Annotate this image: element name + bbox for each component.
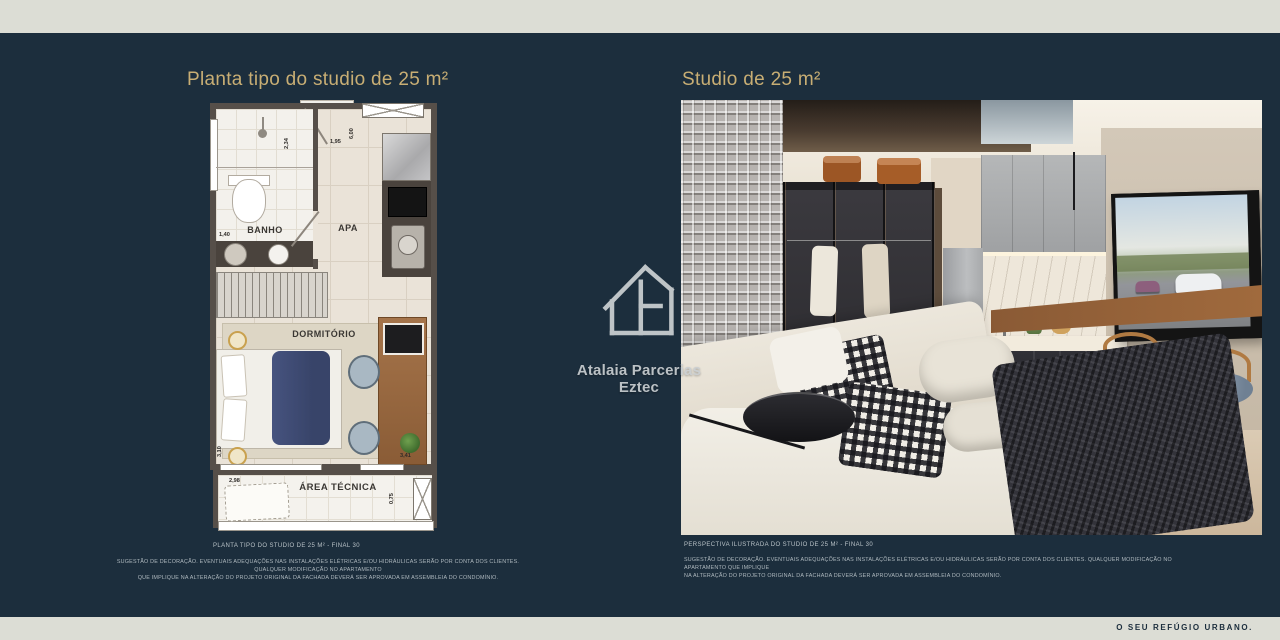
room-label-area-tecnica: ÁREA TÉCNICA [299, 482, 377, 493]
watermark-brand: Atalaia Parcerias Eztec [556, 362, 722, 396]
top-band [0, 0, 1280, 33]
brochure-page: Planta tipo do studio de 25 m² Studio de… [0, 0, 1280, 640]
floor-plan: BANHO 1,40 APA 2,34 1,95 6,00 DORMITÓRIO… [210, 103, 437, 470]
dim-1-95: 1,95 [330, 139, 341, 145]
dim-0-75: 0,75 [389, 480, 395, 504]
cooktop [388, 187, 427, 217]
technical-window [413, 478, 432, 520]
room-label-dormitorio: DORMITÓRIO [268, 329, 380, 339]
technical-area: ÁREA TÉCNICA 2,98 0,75 [213, 470, 437, 534]
bed-pillow [221, 354, 248, 398]
fridge [382, 133, 431, 181]
shower-head-icon [258, 129, 267, 138]
bottom-band: O SEU REFÚGIO URBANO. [0, 617, 1280, 640]
kitchen-sink-bowl [398, 235, 418, 255]
technical-wall-top [213, 470, 437, 475]
technical-window-strip [218, 521, 434, 531]
washing-machine [224, 482, 290, 521]
plan-disclaimer: SUGESTÃO DE DECORAÇÃO. EVENTUAIS ADEQUAÇ… [108, 558, 528, 582]
wardrobe-closet [216, 272, 328, 318]
watermark: Atalaia Parcerias Eztec [556, 250, 722, 392]
photo-title: Studio de 25 m² [682, 69, 821, 91]
leather-box [823, 156, 861, 182]
plan-caption: PLANTA TIPO DO STUDIO DE 25 M² - FINAL 3… [213, 543, 360, 549]
dim-3-10: 3,10 [217, 431, 223, 457]
room-label-banho: BANHO [240, 225, 290, 235]
technical-wall-right [432, 470, 437, 528]
tv-on-desk [383, 323, 424, 355]
tv-purple-car [1135, 281, 1159, 293]
bathroom-window [210, 119, 218, 191]
plan-disclaimer-line1: SUGESTÃO DE DECORAÇÃO. EVENTUAIS ADEQUAÇ… [108, 558, 528, 574]
nightstand-lamp [228, 331, 247, 350]
plan-title: Planta tipo do studio de 25 m² [187, 69, 448, 91]
plan-disclaimer-line2: QUE IMPLIQUE NA ALTERAÇÃO DO PROJETO ORI… [108, 574, 528, 582]
technical-wall-left [213, 470, 218, 528]
dim-1-40: 1,40 [219, 232, 230, 238]
washbasin [224, 243, 247, 266]
desk-chair [348, 421, 380, 455]
desk-chair [348, 355, 380, 389]
photo-caption: PERSPECTIVA ILUSTRADA DO STUDIO DE 25 M²… [684, 542, 873, 548]
hanging-rod [787, 240, 931, 241]
kitchen-window [362, 103, 424, 118]
pendant-light [1073, 152, 1075, 210]
house-logo-icon [593, 252, 685, 342]
hanging-shirt [862, 244, 891, 319]
bed-pillow [221, 398, 248, 442]
round-side-table [743, 392, 855, 442]
bathroom-sink [268, 244, 289, 265]
knit-blanket [991, 332, 1255, 535]
bed-blanket [272, 351, 330, 445]
toilet [232, 179, 266, 223]
dim-2-34: 2,34 [284, 123, 290, 149]
plan-wall-right [431, 103, 437, 470]
leather-box [877, 158, 921, 184]
studio-photo [681, 100, 1262, 535]
dim-2-98: 2,98 [229, 478, 240, 484]
plant [400, 433, 420, 453]
dim-3-41: 3,41 [400, 453, 411, 459]
dim-6-00: 6,00 [349, 113, 355, 139]
room-label-apa: APA [328, 223, 368, 233]
photo-disclaimer-line1: SUGESTÃO DE DECORAÇÃO. EVENTUAIS ADEQUAÇ… [684, 556, 1189, 572]
tv-trees [1117, 252, 1249, 271]
photo-disclaimer-line2: NA ALTERAÇÃO DO PROJETO ORIGINAL DA FACH… [684, 572, 1189, 580]
hanging-shirt [810, 246, 838, 317]
photo-disclaimer: SUGESTÃO DE DECORAÇÃO. EVENTUAIS ADEQUAÇ… [684, 556, 1189, 580]
skylight [981, 100, 1073, 144]
brand-tagline: O SEU REFÚGIO URBANO. [1116, 623, 1253, 632]
shower-partition [216, 167, 313, 168]
upper-cabinets [981, 155, 1106, 253]
